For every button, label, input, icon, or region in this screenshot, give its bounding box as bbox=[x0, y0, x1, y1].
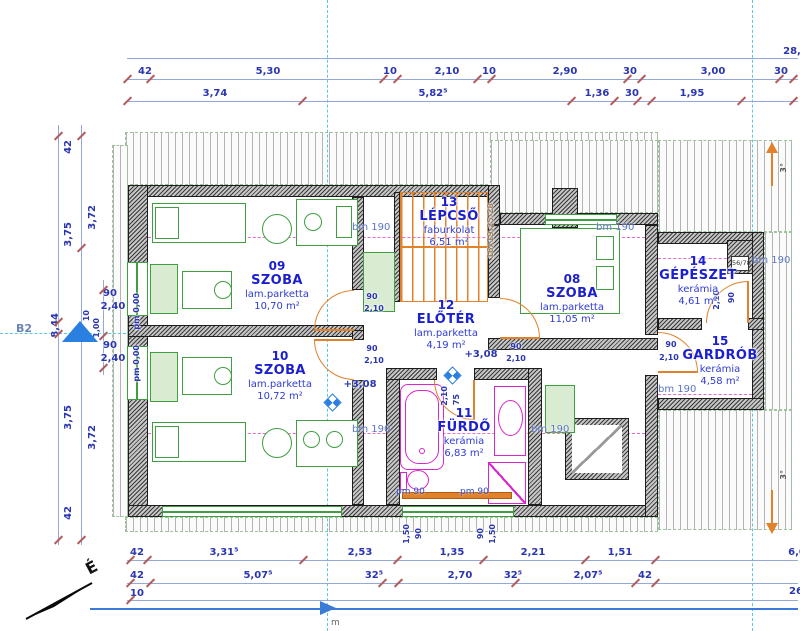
dim: 2,07⁵ bbox=[573, 570, 602, 581]
basin-room10-b bbox=[326, 431, 343, 448]
pm000-upper: pm 0,00 bbox=[132, 293, 141, 330]
stair-dimension-note: 16x19,25/28 bbox=[486, 203, 495, 259]
dim: 3,75 bbox=[63, 405, 74, 430]
dim: 2,53 bbox=[348, 547, 373, 558]
room-label-10: 10SZOBA lam.parketta10,72 m² bbox=[248, 349, 312, 403]
roof-strip-left bbox=[112, 145, 128, 517]
dim: 1,35 bbox=[440, 547, 465, 558]
dim: 90 bbox=[414, 528, 423, 539]
wall-bath-right bbox=[528, 368, 542, 505]
dim-top-edge: 28, bbox=[783, 46, 800, 57]
window-room10-bottom bbox=[162, 506, 342, 517]
dim-bottom-edge-2: 26 bbox=[789, 586, 800, 597]
window-bath-bottom bbox=[402, 506, 514, 517]
dim: 1,36 bbox=[585, 88, 610, 99]
dim: 3,31⁵ bbox=[209, 547, 238, 558]
dim: 30 bbox=[623, 66, 637, 77]
dim: 42 bbox=[63, 140, 74, 154]
dim: 42 bbox=[130, 570, 144, 581]
pillow-room08-a bbox=[596, 236, 614, 260]
dim: 1,51 bbox=[608, 547, 633, 558]
dim: 10 bbox=[82, 310, 91, 321]
slope-label-bottom: 3° bbox=[779, 470, 788, 480]
room-label-15: 15GARDRÓB kerámia4,58 m² bbox=[682, 334, 757, 388]
room-label-08: 08SZOBA lam.parketta11,05 m² bbox=[540, 272, 604, 326]
meter-label: m bbox=[331, 618, 340, 628]
dim-line-top-total bbox=[127, 58, 798, 59]
door-leaf-room10 bbox=[314, 339, 354, 341]
door-arc-room09 bbox=[314, 290, 354, 330]
dim: 90 bbox=[103, 340, 117, 351]
wardrobe-room09 bbox=[363, 252, 395, 312]
section-cut-line bbox=[90, 608, 798, 610]
slope-arrow-bottom-line bbox=[771, 490, 773, 524]
pm90-right: pm 90 bbox=[460, 487, 489, 497]
dim: 1,50 bbox=[488, 524, 497, 544]
dim: 2,70 bbox=[448, 570, 473, 581]
bm190-room09: bm 190 bbox=[352, 222, 390, 233]
chair-room10 bbox=[214, 367, 232, 385]
dim-line-bottom-2 bbox=[127, 583, 798, 584]
dim: 42 bbox=[638, 570, 652, 581]
door10-width: 90 bbox=[366, 344, 377, 353]
dim: 90 bbox=[476, 528, 485, 539]
dim-line-top-2 bbox=[127, 101, 798, 102]
door15-width: 90 bbox=[665, 340, 676, 349]
bathtub-drain bbox=[419, 448, 425, 454]
dim: 5,82⁵ bbox=[418, 88, 447, 99]
room-label-13: 13LÉPCSŐ faburkolat6,51 m² bbox=[419, 195, 478, 249]
room-label-12: 12ELŐTÉR lam.parketta4,19 m² bbox=[414, 298, 478, 352]
slope-arrow-bottom-head bbox=[766, 523, 778, 534]
sill-room09 bbox=[150, 264, 178, 314]
dim-line-bottom-3 bbox=[127, 600, 798, 601]
roof-strip-bottom bbox=[125, 517, 658, 532]
dim: 10 bbox=[383, 66, 397, 77]
dim-line-top-1 bbox=[127, 79, 798, 80]
bm190-room10: bm 190 bbox=[352, 424, 390, 435]
pillow-room10 bbox=[155, 426, 179, 458]
dim: 2,40 bbox=[101, 353, 126, 364]
dim-line-bottom-1 bbox=[127, 560, 798, 561]
dim: 90 bbox=[103, 288, 117, 299]
dim: 30 bbox=[625, 88, 639, 99]
section-label-b2: B2 bbox=[16, 322, 32, 335]
door10-height: 2,10 bbox=[364, 356, 384, 365]
door-leaf-room09 bbox=[314, 329, 354, 331]
dim: 2,40 bbox=[101, 301, 126, 312]
sill-room10 bbox=[150, 352, 178, 402]
room-label-09: 09SZOBA lam.parketta10,70 m² bbox=[245, 259, 309, 313]
table-room10 bbox=[262, 428, 292, 458]
section-marker-b2 bbox=[62, 321, 98, 342]
door15-height: 2,10 bbox=[659, 353, 679, 362]
shaft-inner bbox=[572, 425, 622, 473]
chair-room09 bbox=[214, 281, 232, 299]
table-room09 bbox=[262, 214, 292, 244]
wall-right-main bbox=[645, 225, 658, 335]
floor-plan-drawing: 56/78 16x19,25/28 bbox=[0, 0, 800, 631]
door-leaf-room08 bbox=[500, 337, 540, 339]
slope-arrow-top-head bbox=[766, 142, 778, 153]
dim: 8,44 bbox=[50, 313, 61, 338]
dim: 32⁵ bbox=[365, 570, 383, 581]
dim: 2,21 bbox=[521, 547, 546, 558]
dim: 3,72 bbox=[87, 205, 98, 230]
pm000-lower: pm 0,00 bbox=[132, 345, 141, 382]
dim: 2,90 bbox=[553, 66, 578, 77]
room-label-14: 14GÉPÉSZET kerámia4,61 m² bbox=[659, 254, 737, 308]
bm190-gepeszet: bm 190 bbox=[752, 255, 790, 266]
wall-right-main-lower bbox=[645, 375, 658, 517]
room-label-11: 11FÜRDŐ kerámia6,83 m² bbox=[437, 406, 490, 460]
level-elotere: +3,08 bbox=[464, 349, 497, 360]
dim: 3,74 bbox=[203, 88, 228, 99]
wall-1415-bottom bbox=[658, 398, 764, 410]
dim: 42 bbox=[138, 66, 152, 77]
level-room10: +3,08 bbox=[343, 379, 376, 390]
slope-label-top: 3° bbox=[779, 163, 788, 173]
dim: 3,00 bbox=[701, 66, 726, 77]
chair-room09-top bbox=[304, 213, 322, 231]
bm190-gardrob: bm 190 bbox=[658, 384, 696, 395]
door-leaf-gepeszet bbox=[747, 281, 749, 323]
dim: 5,07⁵ bbox=[243, 570, 272, 581]
wall-bath-top-left bbox=[386, 368, 437, 380]
dim: 42 bbox=[130, 547, 144, 558]
cabinet-room09-top bbox=[336, 206, 352, 238]
dim-bottom-edge-1: 6,0 bbox=[788, 547, 800, 558]
dim: 10 bbox=[130, 588, 144, 599]
bm190-room08: bm 190 bbox=[596, 222, 634, 233]
dim: 5,30 bbox=[256, 66, 281, 77]
basin-room10-a bbox=[303, 431, 320, 448]
dim: 1,50 bbox=[402, 524, 411, 544]
dim: 42 bbox=[63, 506, 74, 520]
wall-1415-middle-right bbox=[748, 318, 764, 330]
wall-1415-middle-left bbox=[658, 318, 702, 330]
slope-arrow-top-line bbox=[771, 152, 773, 186]
door08-height: 2,10 bbox=[506, 354, 526, 363]
dim: 30 bbox=[774, 66, 788, 77]
dim: 3,75 bbox=[63, 222, 74, 247]
section-cut-arrow bbox=[320, 601, 336, 615]
dim: 2,10 bbox=[435, 66, 460, 77]
door-arc-room10 bbox=[314, 340, 354, 380]
wall-bath-left bbox=[386, 368, 400, 505]
pm90-left: pm 90 bbox=[396, 487, 425, 497]
dim: 1,95 bbox=[680, 88, 705, 99]
pillow-room09 bbox=[155, 207, 179, 239]
dim: 10 bbox=[482, 66, 496, 77]
bm190-corridor: bm 190 bbox=[531, 424, 569, 435]
washbasin bbox=[498, 400, 523, 436]
door09-height: 2,10 bbox=[364, 304, 384, 313]
door11-height: 2,10 bbox=[440, 386, 449, 406]
door09-width: 90 bbox=[366, 292, 377, 301]
door08-width: 90 bbox=[510, 342, 521, 351]
dim: 32⁵ bbox=[504, 570, 522, 581]
door11-width: 75 bbox=[452, 394, 461, 405]
dim: 3,72 bbox=[87, 425, 98, 450]
